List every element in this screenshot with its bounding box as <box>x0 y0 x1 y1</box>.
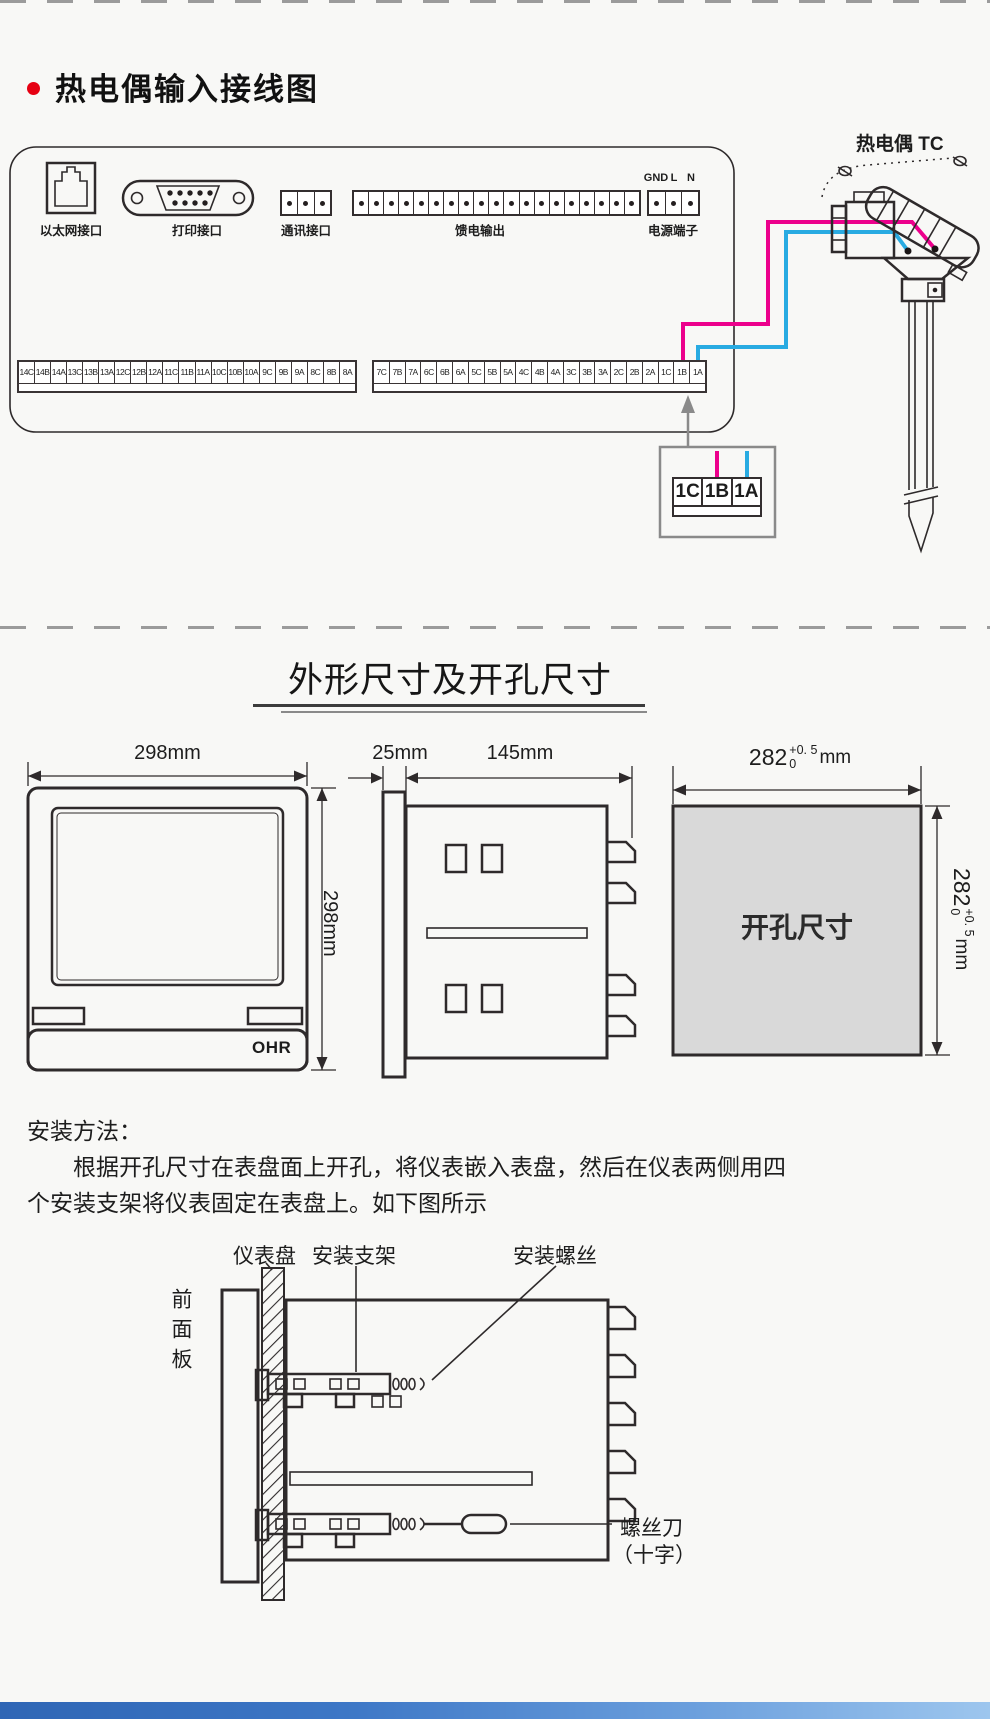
front-height-dim: 298mm <box>318 890 341 957</box>
section1-title: 热电偶输入接线图 <box>55 64 319 109</box>
brand-logo: OHR <box>252 1038 291 1058</box>
comm-label: 通讯接口 <box>275 220 337 239</box>
terminal-cell: 3C <box>564 362 580 384</box>
bullet-icon <box>27 82 40 95</box>
terminal-cell: 2C <box>611 362 627 384</box>
cutout-text: 开孔尺寸 <box>697 906 897 946</box>
terminal-cell: 3B <box>580 362 596 384</box>
terminal-cell: 13A <box>99 362 115 384</box>
install-heading: 安装方法： <box>27 1112 142 1146</box>
install-line1: 根据开孔尺寸在表盘面上开孔，将仪表嵌入表盘，然后在仪表两侧用四 <box>73 1148 786 1182</box>
screwdriver-label: 螺丝刀 <box>620 1512 683 1542</box>
feed-terminal-block <box>352 190 641 216</box>
power-label: 电源端子 <box>641 220 705 239</box>
terminal-cell: 4B <box>532 362 548 384</box>
terminal-cell: 1A <box>733 479 760 507</box>
thermocouple-wires <box>683 222 939 361</box>
tc-plus-wire <box>683 222 935 361</box>
terminal-cell: 10B <box>228 362 244 384</box>
terminal <box>649 192 666 214</box>
tc-minus-wire <box>698 232 908 361</box>
install-line2: 个安装支架将仪表固定在表盘上。如下图所示 <box>27 1184 487 1218</box>
title-underline <box>253 704 645 707</box>
printer-port-icon <box>123 181 253 215</box>
terminal-cell: 10C <box>212 362 228 384</box>
terminal <box>666 192 683 214</box>
dim-value: 282 <box>749 744 787 771</box>
bracket-label: 安装支架 <box>312 1240 396 1270</box>
terminal-cell: 12C <box>115 362 131 384</box>
tolerance: +0. 50 <box>789 744 817 770</box>
terminal-cell: 6A <box>453 362 469 384</box>
power-terminal-block <box>647 190 700 216</box>
terminal-cell: 1A <box>690 362 705 384</box>
line-art <box>0 0 990 1719</box>
dim-unit: mm <box>951 939 973 971</box>
terminal-cell: 14B <box>35 362 51 384</box>
dim-value: 282 <box>948 868 975 906</box>
comm-terminal-block <box>280 190 332 216</box>
power-pin-n: N <box>683 172 699 184</box>
detail-terminal-strip: 1C1B1A <box>672 477 762 517</box>
terminal-cell: 1C <box>659 362 675 384</box>
screw-label: 安装螺丝 <box>513 1240 597 1270</box>
terminal-cell: 1B <box>674 362 690 384</box>
dim-unit: mm <box>819 747 851 769</box>
terminal-cell: 8C <box>308 362 324 384</box>
terminal-cell: 9C <box>260 362 276 384</box>
section2-title: 外形尺寸及开孔尺寸 <box>205 652 695 703</box>
thermocouple-illustration <box>822 157 984 552</box>
terminal-cell: 11A <box>196 362 212 384</box>
terminal-cell: 14C <box>19 362 35 384</box>
terminal <box>315 192 330 214</box>
ethernet-label: 以太网接口 <box>28 220 114 239</box>
mid-dashed-separator <box>0 626 990 629</box>
terminal-cell: 12A <box>147 362 163 384</box>
front-view-drawing <box>28 762 336 1070</box>
terminal-cell: 5B <box>485 362 501 384</box>
top-dashed-separator <box>0 0 990 3</box>
side-view-drawing <box>348 766 635 1077</box>
title-underline-2 <box>281 711 647 713</box>
footer-bar <box>0 1702 990 1719</box>
terminal <box>282 192 298 214</box>
terminal-cell: 5A <box>501 362 517 384</box>
power-pin-l: L <box>666 172 682 184</box>
terminal-cell: 9A <box>292 362 308 384</box>
tc-label: 热电偶 TC <box>856 129 944 156</box>
terminal-cell: 4A <box>548 362 564 384</box>
cutout-width-dim: 282+0. 50mm <box>695 744 905 771</box>
terminal-cell: 2B <box>627 362 643 384</box>
ethernet-icon <box>47 163 95 213</box>
terminal-cell: 7C <box>374 362 390 384</box>
front-panel-label: 前面板 <box>166 1288 196 1378</box>
terminal-cell: 7A <box>406 362 422 384</box>
terminal-cell: 5C <box>469 362 485 384</box>
terminal-strip-right: 7C7B7A6C6B6A5C5B5A4C4B4A3C3B3A2C2B2A1C1B… <box>372 360 707 393</box>
terminal-cell: 11B <box>179 362 195 384</box>
front-width-dim: 298mm <box>110 742 225 765</box>
terminal-cell: 13C <box>67 362 83 384</box>
screwdriver-icon <box>424 1515 506 1533</box>
terminal-cell: 8B <box>324 362 340 384</box>
terminal-strip-left: 14C14B14A13C13B13A12C12B12A11C11B11A10C1… <box>17 360 357 393</box>
terminal <box>682 192 698 214</box>
terminal <box>298 192 314 214</box>
printer-label: 打印接口 <box>164 220 230 239</box>
terminal-cell: 8A <box>340 362 355 384</box>
terminal-cell: 12B <box>131 362 147 384</box>
manual-page: 热电偶输入接线图 以太网接口 打印接口 通讯接口 馈电输出 电源端子 GND L… <box>0 0 990 1719</box>
tolerance: +0. 50 <box>948 908 974 936</box>
terminal-cell: 9B <box>276 362 292 384</box>
terminal-cell: 7B <box>390 362 406 384</box>
terminal-cell: 6C <box>421 362 437 384</box>
terminal-cell: 10A <box>244 362 260 384</box>
terminal-cell: 11C <box>163 362 179 384</box>
panel-label: 仪表盘 <box>233 1240 296 1270</box>
feed-label: 馈电输出 <box>446 220 514 239</box>
terminal-cell: 1B <box>703 479 732 507</box>
terminal-cell: 6B <box>437 362 453 384</box>
terminal-cell: 14A <box>51 362 67 384</box>
terminal-cell: 13B <box>83 362 99 384</box>
cutout-height-dim: 282+0. 50mm <box>948 868 975 970</box>
terminal-cell: 2A <box>643 362 659 384</box>
body-depth-dim: 145mm <box>478 742 562 765</box>
terminal-cell: 4C <box>516 362 532 384</box>
terminal-cell: 1C <box>674 479 703 507</box>
terminal-cell: 3A <box>595 362 611 384</box>
installation-diagram <box>222 1263 635 1600</box>
bezel-depth-dim: 25mm <box>368 742 432 765</box>
screwdriver-type-label: （十字） <box>612 1539 696 1569</box>
